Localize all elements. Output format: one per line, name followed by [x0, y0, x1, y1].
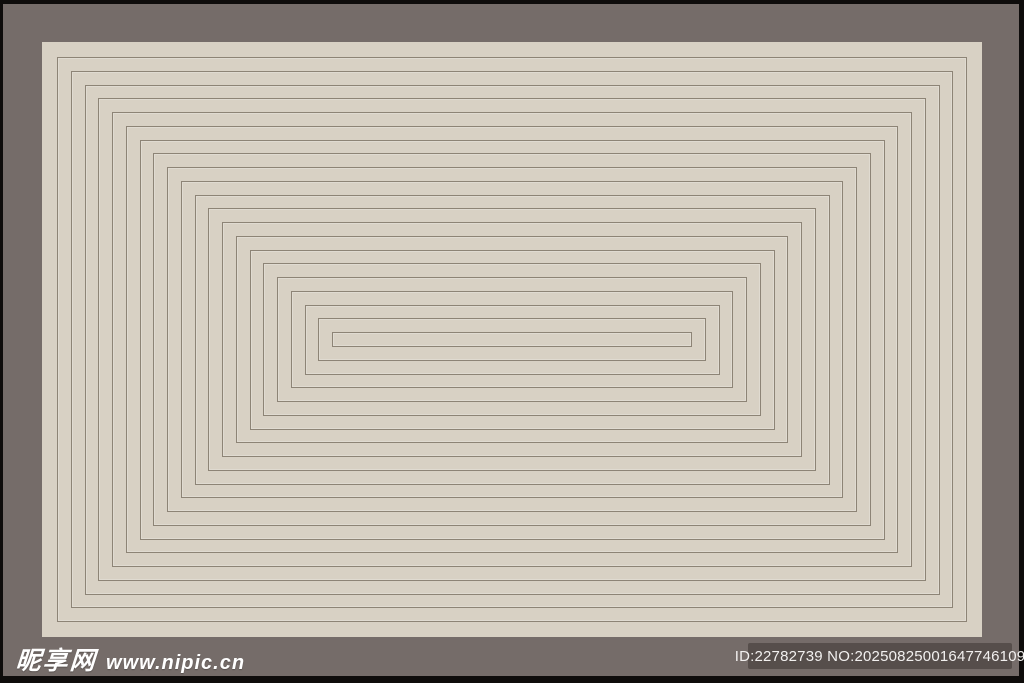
site-logo: 昵享网: [15, 641, 99, 677]
artwork-panel: [42, 42, 982, 637]
image-id-badge: ID:22782739 NO:20250825001647746109: [748, 643, 1012, 669]
artwork-background: 昵享网 www.nipic.cn ID:22782739 NO:20250825…: [3, 4, 1019, 676]
concentric-ring: [332, 332, 692, 347]
image-frame: 昵享网 www.nipic.cn ID:22782739 NO:20250825…: [0, 0, 1024, 683]
site-url: www.nipic.cn: [106, 652, 245, 675]
watermark-logo: 昵享网 www.nipic.cn: [16, 641, 245, 671]
